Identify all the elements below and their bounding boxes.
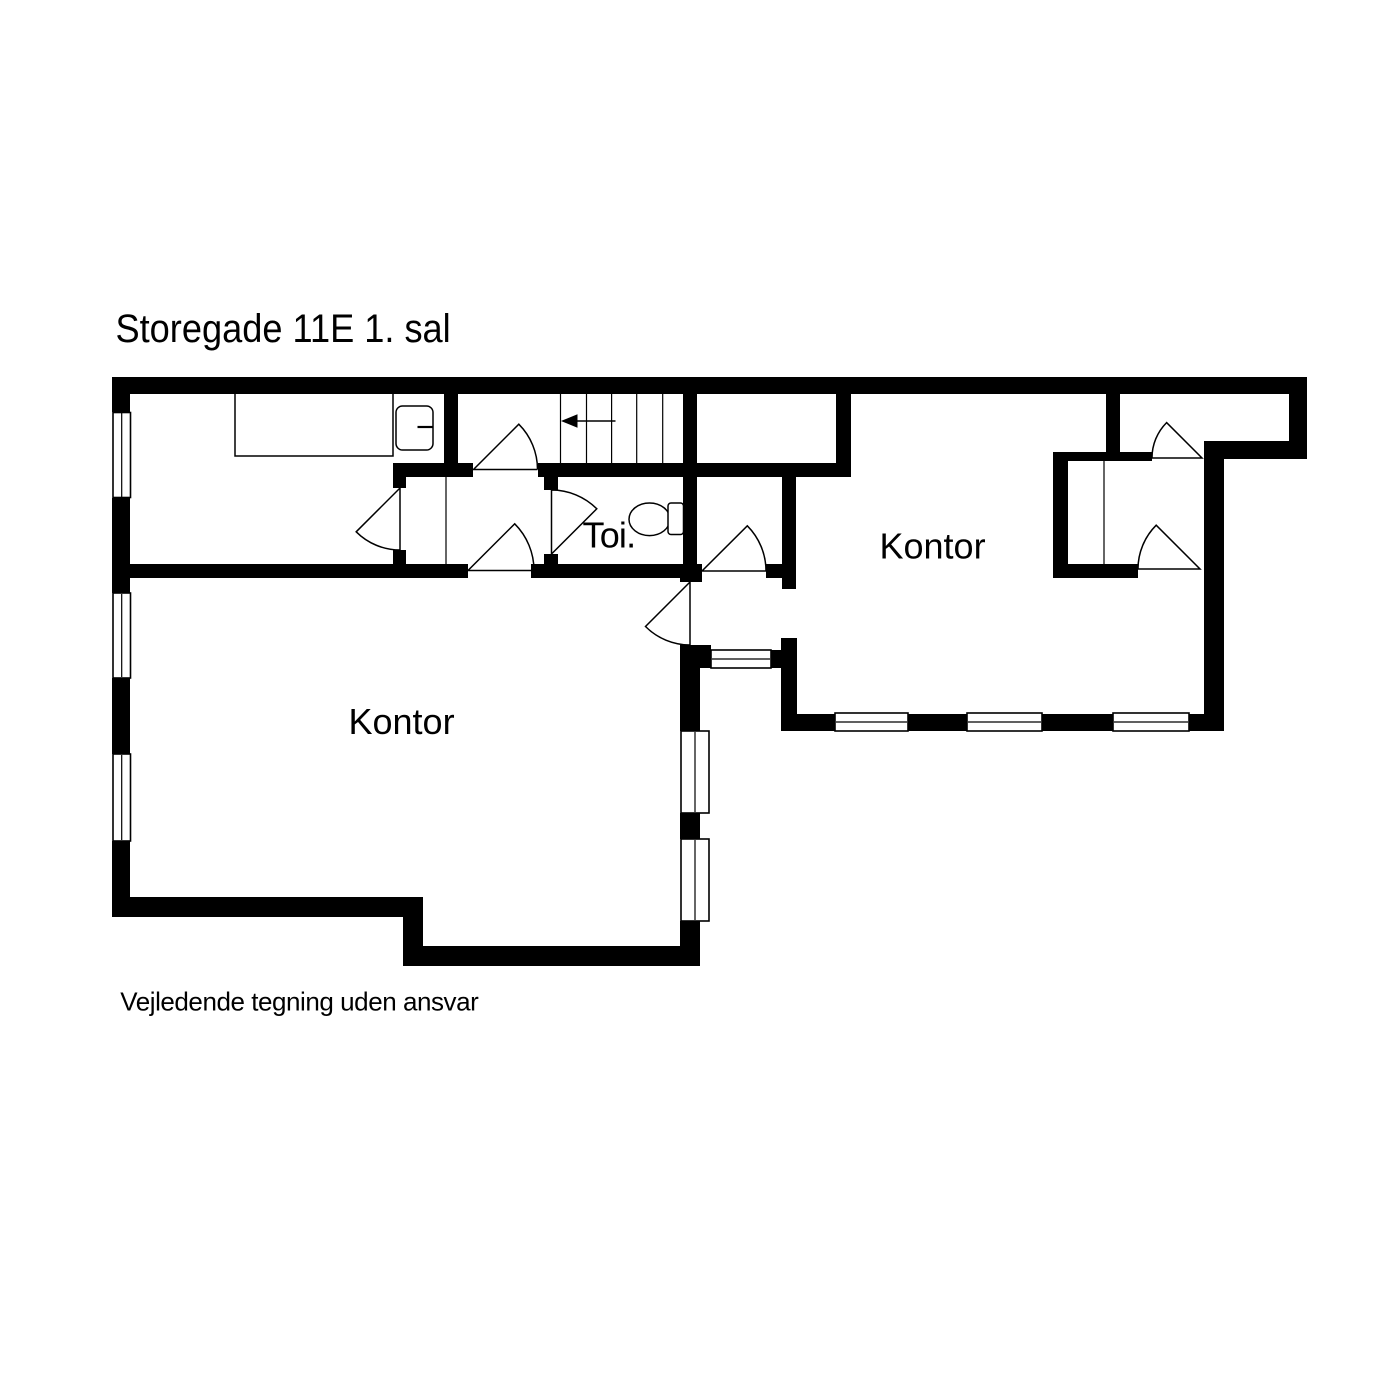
svg-text:Toi.: Toi.	[583, 515, 636, 556]
svg-text:Vejledende tegning uden ansvar: Vejledende tegning uden ansvar	[120, 987, 479, 1017]
svg-text:Kontor: Kontor	[880, 526, 986, 567]
svg-text:Storegade 11E 1. sal: Storegade 11E 1. sal	[116, 306, 451, 351]
svg-text:Kontor: Kontor	[349, 701, 455, 742]
